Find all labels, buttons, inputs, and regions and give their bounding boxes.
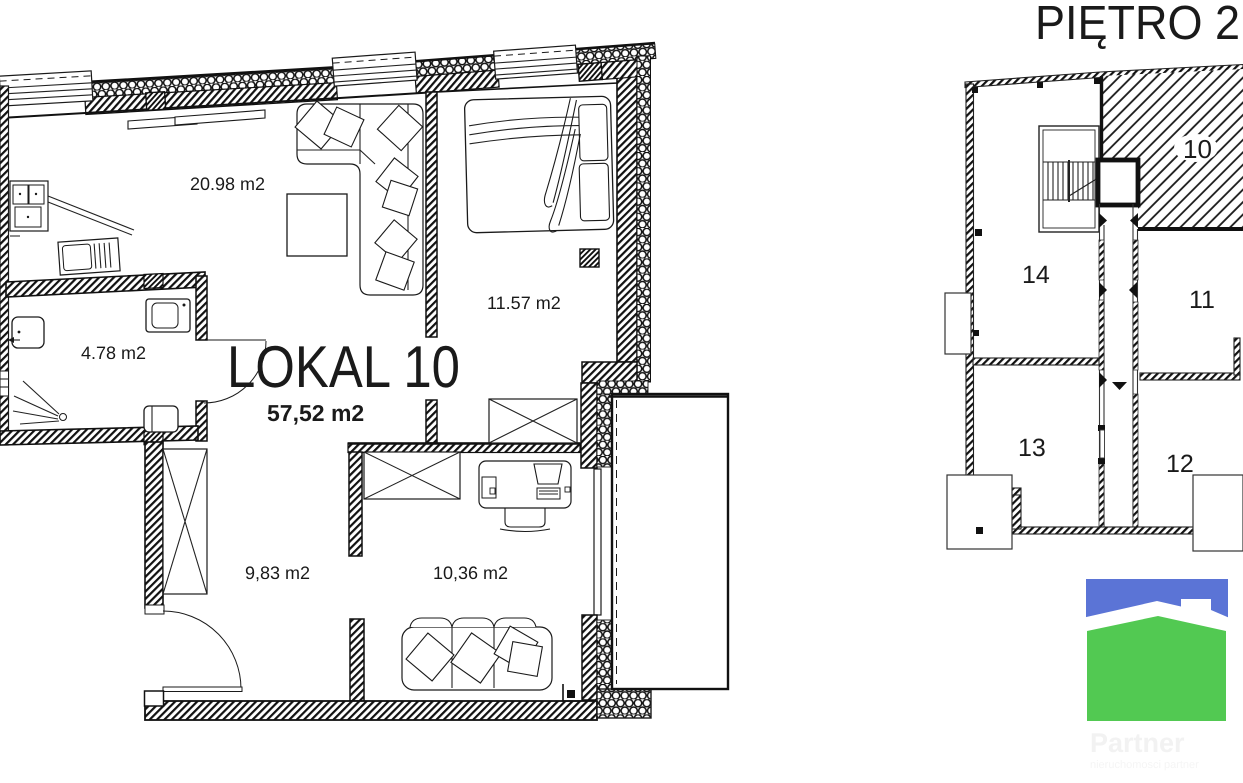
svg-text:57,52 m2: 57,52 m2	[267, 400, 364, 426]
svg-text:Partner: Partner	[1090, 728, 1185, 758]
svg-text:9,83 m2: 9,83 m2	[245, 563, 310, 583]
svg-text:11: 11	[1189, 286, 1215, 314]
svg-text:nieruchomosci partner: nieruchomosci partner	[1090, 759, 1199, 771]
svg-text:10,36 m2: 10,36 m2	[433, 563, 508, 583]
svg-text:11.57 m2: 11.57 m2	[487, 293, 561, 313]
svg-text:4.78 m2: 4.78 m2	[81, 343, 146, 363]
svg-text:20.98 m2: 20.98 m2	[190, 174, 265, 194]
svg-text:PIĘTRO 2: PIĘTRO 2	[1035, 0, 1240, 50]
svg-text:13: 13	[1018, 434, 1046, 462]
svg-text:12: 12	[1166, 450, 1194, 478]
svg-text:10: 10	[1183, 134, 1212, 164]
svg-text:14: 14	[1022, 261, 1050, 289]
svg-text:LOKAL 10: LOKAL 10	[227, 334, 460, 400]
